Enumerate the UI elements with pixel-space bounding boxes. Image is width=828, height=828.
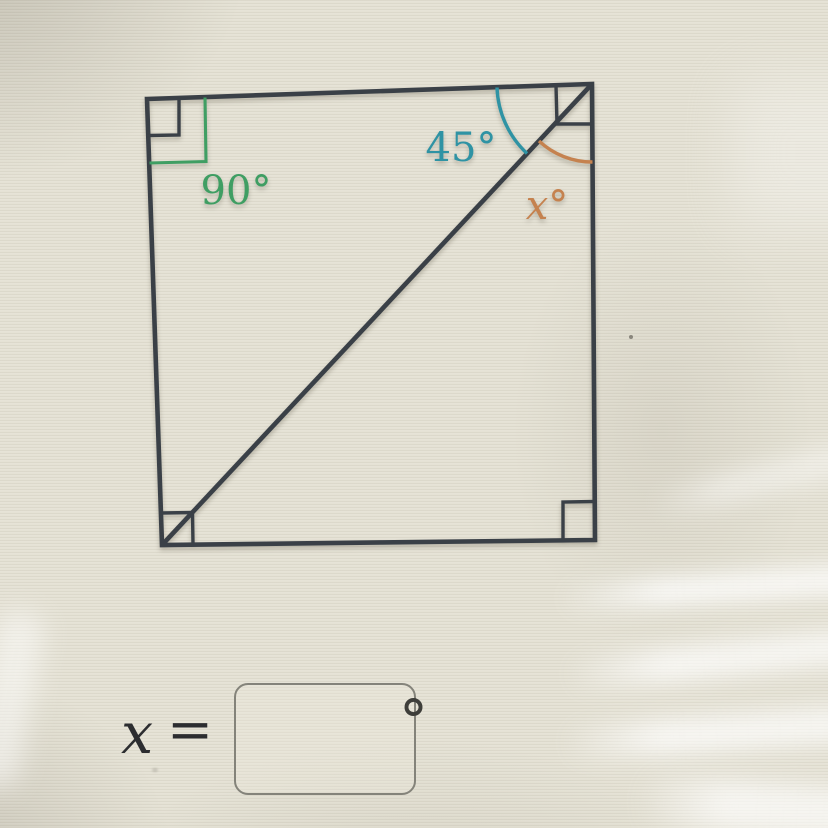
- equals-sign: =: [167, 702, 213, 757]
- angle-label-x: x°: [526, 183, 569, 229]
- screenshot-photo: 90° 45° x° x = °: [0, 0, 828, 828]
- answer-input[interactable]: [234, 683, 416, 795]
- right-angle-marker-top-left: [149, 99, 180, 136]
- degree-symbol: °: [399, 692, 428, 750]
- diagonal-line: [162, 84, 592, 545]
- equation-variable: x: [121, 706, 153, 763]
- angle-label-45: 45°: [426, 125, 497, 171]
- angle-arc-x: [539, 141, 593, 162]
- right-angle-marker-bottom-right: [563, 502, 595, 541]
- angle-arc-45: [497, 88, 527, 154]
- angle-label-90: 90°: [201, 168, 272, 214]
